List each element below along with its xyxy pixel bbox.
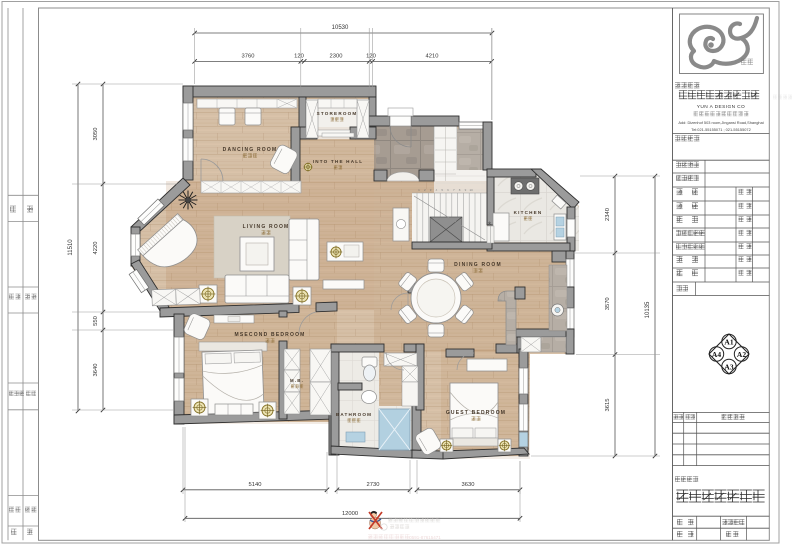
svg-text:3630: 3630 — [462, 482, 475, 488]
svg-text:STOREROOM: STOREROOM — [317, 111, 358, 116]
svg-text:3570: 3570 — [605, 297, 611, 310]
svg-text:3050: 3050 — [93, 128, 99, 141]
svg-text:4210: 4210 — [426, 54, 439, 60]
svg-text:3615: 3615 — [605, 399, 611, 412]
svg-text:12000: 12000 — [342, 511, 358, 517]
svg-text:4220: 4220 — [93, 242, 99, 255]
svg-text:10135: 10135 — [645, 301, 651, 318]
svg-text:A3: A3 — [724, 363, 733, 372]
svg-text:550: 550 — [93, 316, 99, 326]
svg-text:Tel:021-55155071 ; 021-5515507: Tel:021-55155071 ; 021-55155072 — [691, 127, 751, 132]
svg-text:DINING ROOM: DINING ROOM — [454, 262, 502, 268]
svg-text:11510: 11510 — [68, 239, 74, 256]
svg-text:A4: A4 — [712, 350, 721, 359]
svg-text:Add: Dizenhof 503 room,Jingans: Add: Dizenhof 503 room,Jingansi Road,Sha… — [678, 120, 763, 125]
svg-text:A1: A1 — [724, 338, 733, 347]
svg-text:LIVING ROOM: LIVING ROOM — [243, 224, 290, 230]
svg-text:2730: 2730 — [367, 482, 380, 488]
svg-text:BATHROOM: BATHROOM — [336, 412, 372, 417]
svg-text:MSECOND BEDROOM: MSECOND BEDROOM — [234, 332, 305, 338]
svg-text:GUEST BEDROOM: GUEST BEDROOM — [446, 410, 506, 416]
svg-text:A2: A2 — [737, 350, 746, 359]
svg-text:M.B.: M.B. — [290, 378, 304, 383]
svg-text:INTO THE HALL: INTO THE HALL — [313, 159, 363, 164]
svg-text:2340: 2340 — [605, 208, 611, 221]
svg-text:5140: 5140 — [249, 482, 262, 488]
svg-text:120: 120 — [294, 54, 304, 60]
svg-text:DANCING ROOM: DANCING ROOM — [223, 147, 278, 153]
svg-text:3760: 3760 — [242, 54, 255, 60]
svg-text:3640: 3640 — [93, 364, 99, 377]
svg-text:2300: 2300 — [330, 54, 343, 60]
svg-text:KITCHEN: KITCHEN — [514, 210, 543, 215]
svg-text:YUN A DESIGN CO: YUN A DESIGN CO — [697, 104, 745, 110]
svg-text:10530: 10530 — [332, 25, 349, 31]
svg-text:120: 120 — [366, 54, 376, 60]
svg-text:0591-87615471: 0591-87615471 — [409, 535, 441, 540]
